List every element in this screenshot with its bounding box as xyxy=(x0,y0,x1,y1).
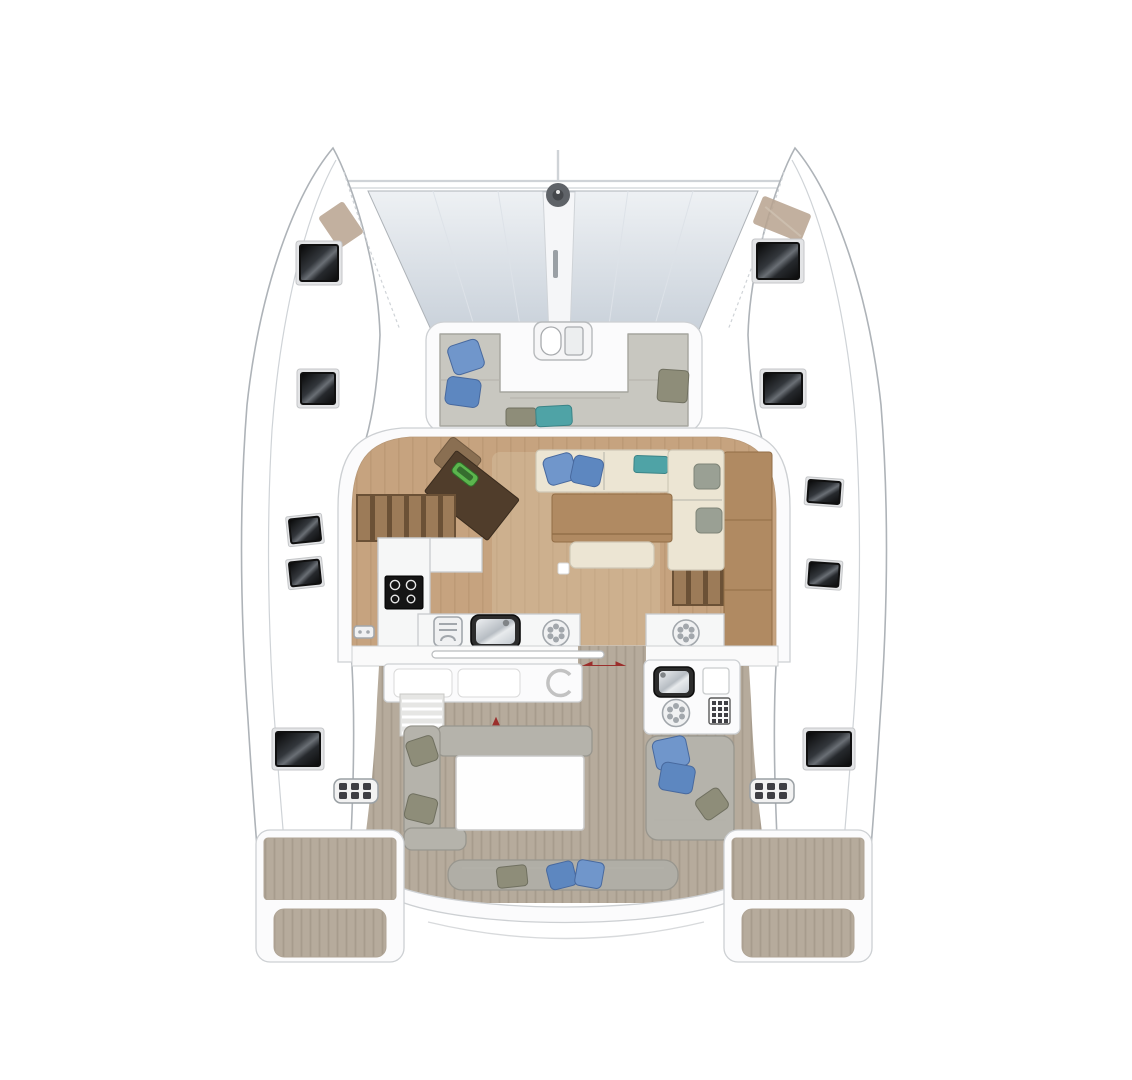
hatch-aft-port xyxy=(272,728,324,770)
hatch-small-starboard-2 xyxy=(805,559,843,590)
forward-cushion-teal xyxy=(536,405,573,427)
chaise-cushion-1 xyxy=(694,464,720,489)
starboard-pillow-blue-2 xyxy=(658,761,696,794)
salon xyxy=(338,428,790,662)
aft-bench-pillow-olive xyxy=(496,864,528,888)
dining-table xyxy=(552,494,672,574)
hatch-bow-starboard xyxy=(752,239,804,283)
salon-cushion-teal xyxy=(634,455,669,473)
galley-appliance xyxy=(434,617,462,646)
hatch-aft-starboard xyxy=(803,728,855,770)
windlass xyxy=(546,183,570,207)
hatch-bow-port xyxy=(296,241,342,285)
mast-slot xyxy=(553,250,558,278)
salon-pillow-blue-2 xyxy=(569,454,604,488)
aft-bench-pillow-blue-2 xyxy=(574,859,605,889)
trampoline xyxy=(368,191,758,336)
cockpit-table xyxy=(456,756,584,830)
hatch-small-starboard-1 xyxy=(804,477,844,508)
galley-sink xyxy=(471,615,520,648)
port-stairs xyxy=(356,494,456,542)
salon-front-door xyxy=(534,322,592,360)
hatch-mid-starboard xyxy=(760,369,806,408)
icebox-keypad xyxy=(709,698,730,724)
swim-platform-port xyxy=(256,830,404,962)
table-leg xyxy=(558,563,569,574)
engine-control-panel-port xyxy=(334,779,378,803)
sliding-door xyxy=(432,651,604,658)
hatch-small-port-2 xyxy=(286,556,325,590)
aft-bench xyxy=(448,859,678,891)
swim-platform-starboard xyxy=(724,830,872,962)
forward-cushion-olive-1 xyxy=(506,408,536,426)
outdoor-burner xyxy=(663,700,690,727)
engine-control-panel-starboard xyxy=(750,779,794,803)
hatch-small-port-1 xyxy=(286,513,325,547)
hatch-mid-port xyxy=(297,369,339,408)
forward-pillow-blue-2 xyxy=(444,376,482,408)
salon-sideboard xyxy=(724,452,772,654)
table-bench xyxy=(570,542,654,568)
outdoor-galley xyxy=(644,660,740,734)
galley-cooktop xyxy=(385,576,423,609)
starboard-counter-burner xyxy=(673,620,699,646)
catamaran-deck-plan xyxy=(0,0,1132,1080)
chaise-cushion-2 xyxy=(696,508,722,533)
starboard-bench xyxy=(646,735,734,840)
outdoor-galley-sink xyxy=(654,667,694,697)
aft-cockpit xyxy=(384,660,740,850)
vent-fitting xyxy=(354,626,374,638)
forward-cushion-olive-2 xyxy=(657,369,689,403)
bow-walkway xyxy=(543,192,575,336)
galley-burner xyxy=(543,620,569,646)
forward-cockpit xyxy=(426,322,702,432)
